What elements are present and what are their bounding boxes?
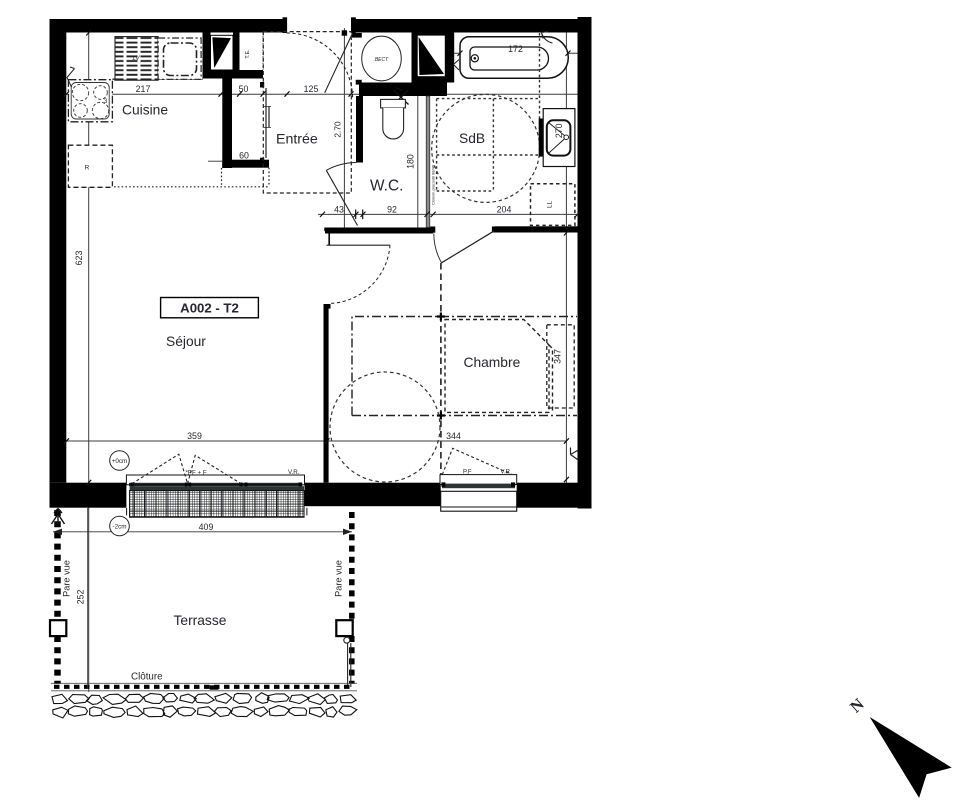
svg-text:W.C.: W.C. xyxy=(370,178,403,195)
svg-text:A002 - T2: A002 - T2 xyxy=(180,301,239,316)
svg-text:125: 125 xyxy=(304,84,319,94)
svg-text:LL: LL xyxy=(547,201,554,208)
svg-text:60: 60 xyxy=(239,151,249,161)
svg-text:204: 204 xyxy=(497,204,512,214)
svg-text:-2cm: -2cm xyxy=(113,524,127,531)
svg-text:217: 217 xyxy=(136,84,151,94)
svg-text:92: 92 xyxy=(387,204,397,214)
svg-text:Pare vue: Pare vue xyxy=(333,560,343,597)
svg-text:T.E.: T.E. xyxy=(245,49,251,58)
svg-text:Cloison placostil 98/48: Cloison placostil 98/48 xyxy=(431,164,436,205)
svg-text:Séjour: Séjour xyxy=(166,334,206,349)
svg-text:2.70: 2.70 xyxy=(332,121,342,138)
svg-text:LV: LV xyxy=(132,56,140,62)
svg-text:Entrée: Entrée xyxy=(276,132,318,148)
svg-text:V.R.: V.R. xyxy=(288,469,300,476)
svg-text:Terrasse: Terrasse xyxy=(174,613,227,628)
svg-text:359: 359 xyxy=(187,431,202,441)
svg-text:409: 409 xyxy=(199,522,214,532)
svg-text:Clôture: Clôture xyxy=(131,672,163,683)
svg-text:180: 180 xyxy=(406,154,416,169)
svg-text:252: 252 xyxy=(75,590,85,605)
svg-text:BECT: BECT xyxy=(375,57,389,63)
svg-text:R: R xyxy=(85,165,90,172)
svg-text:623: 623 xyxy=(74,251,84,266)
svg-text:SdB: SdB xyxy=(459,131,485,146)
svg-text:Pare vue: Pare vue xyxy=(62,560,72,597)
svg-text:*PF + F: *PF + F xyxy=(186,470,207,477)
svg-text:172: 172 xyxy=(508,44,523,54)
svg-text:V.R: V.R xyxy=(501,470,511,476)
svg-text:P.F: P.F xyxy=(463,470,472,476)
svg-text:344: 344 xyxy=(446,431,461,441)
svg-text:+0cm: +0cm xyxy=(112,458,128,465)
svg-text:Cuisine: Cuisine xyxy=(122,103,168,118)
svg-text:347: 347 xyxy=(552,349,562,364)
svg-text:43: 43 xyxy=(334,204,344,214)
svg-text:Chambre: Chambre xyxy=(464,355,521,370)
svg-text:270: 270 xyxy=(554,123,564,138)
